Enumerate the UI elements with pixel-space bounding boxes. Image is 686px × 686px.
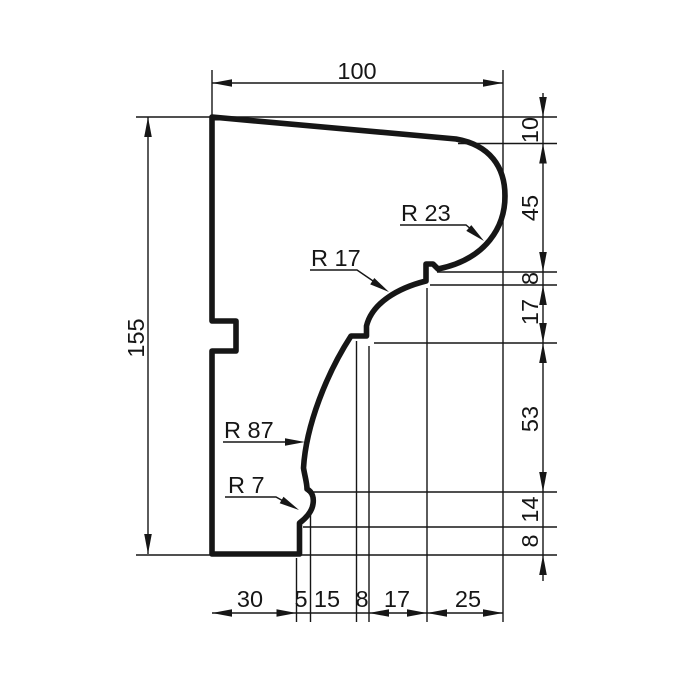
extension-lines-vertical <box>212 70 503 622</box>
leader-arrow-r87 <box>285 438 305 446</box>
dim-label-bottom-17: 17 <box>384 586 410 612</box>
technical-drawing-canvas: 100 155 10 45 8 17 53 14 8 30 5 15 8 17 … <box>0 0 686 686</box>
radius-label-r87: R 87 <box>224 417 274 443</box>
radius-label-r23: R 23 <box>401 200 451 226</box>
dim-label-right-8b: 8 <box>517 534 543 547</box>
dim-label-top: 100 <box>337 58 376 84</box>
dim-label-right-10: 10 <box>517 117 543 143</box>
dim-label-bottom-8: 8 <box>355 586 368 612</box>
dim-label-right-8a: 8 <box>517 272 543 285</box>
dim-label-right-17: 17 <box>517 299 543 325</box>
dimension-labels: 100 155 10 45 8 17 53 14 8 30 5 15 8 17 … <box>123 58 543 612</box>
moulding-profile-drawing: 100 155 10 45 8 17 53 14 8 30 5 15 8 17 … <box>0 0 686 686</box>
radius-label-r7: R 7 <box>228 472 265 498</box>
dim-label-bottom-15: 15 <box>314 586 340 612</box>
dim-label-left: 155 <box>123 318 149 357</box>
leader-r17 <box>310 270 376 283</box>
dim-label-right-53: 53 <box>517 406 543 432</box>
dim-label-bottom-25: 25 <box>455 586 481 612</box>
dim-label-right-45: 45 <box>517 195 543 221</box>
leader-arrow-r17 <box>370 278 389 292</box>
dim-label-right-14: 14 <box>517 496 543 522</box>
extension-lines-horizontal <box>136 117 557 555</box>
dim-label-bottom-5: 5 <box>294 586 307 612</box>
dim-label-bottom-30: 30 <box>237 586 263 612</box>
leader-arrow-r7 <box>280 497 299 510</box>
radius-label-r17: R 17 <box>311 245 361 271</box>
